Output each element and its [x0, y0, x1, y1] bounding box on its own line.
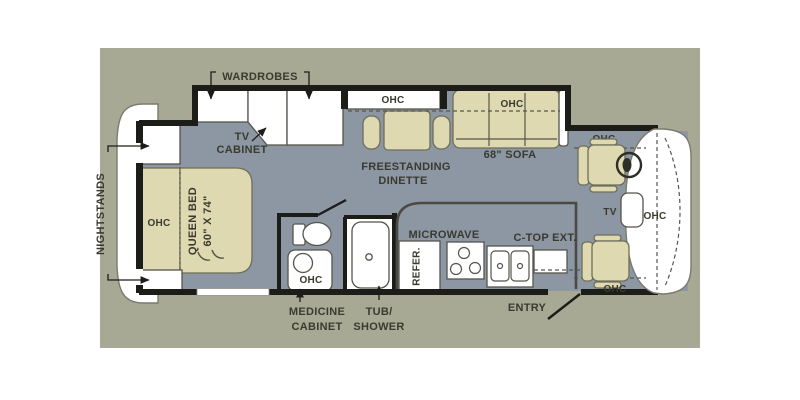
wall-post — [341, 85, 348, 109]
tub-shower-label-line1: TUB/ — [366, 306, 393, 318]
bedroom-window — [197, 289, 269, 296]
tv-cabinet-label-line2: CABINET — [217, 144, 268, 156]
queen-bed-label-line2: 60" X 74" — [202, 195, 214, 246]
dinette-chair-left — [363, 116, 380, 149]
wall-post — [440, 85, 447, 109]
refrigerator-label: REFER. — [412, 247, 423, 285]
sofa-ohc-label: OHC — [500, 99, 523, 110]
dinette-area: OHC FREESTANDING DINETTE — [347, 88, 451, 187]
passenger-ohc-label: OHC — [603, 284, 626, 295]
front-ohc-label: OHC — [643, 211, 666, 222]
wall-step-vertical — [565, 85, 571, 131]
cab-tv — [621, 193, 643, 227]
floorplan-image: OHC QUEEN BED 60" X 74" OHC FREESTANDING… — [0, 0, 800, 400]
wall-cab-top — [565, 125, 658, 131]
driver-seat-cushion — [588, 145, 625, 185]
driver-seat-armrest — [590, 139, 617, 145]
medicine-cabinet-label-line1: MEDICINE — [289, 306, 345, 318]
shower-drain — [366, 254, 372, 260]
bathroom-sink — [294, 254, 313, 273]
dinette-chair-right — [433, 116, 450, 149]
dinette-ohc-label: OHC — [381, 95, 404, 106]
nightstands-label: NIGHTSTANDS — [95, 173, 107, 255]
dinette-table — [384, 111, 430, 150]
wardrobes-label: WARDROBES — [222, 71, 297, 83]
wall-top-main — [192, 85, 568, 91]
wall-wardrobe-left — [192, 85, 198, 126]
steering-wheel-hub — [623, 158, 632, 172]
entry-label: ENTRY — [508, 302, 547, 314]
bathroom-partition-wall — [343, 217, 347, 292]
driver-seat-armrest — [590, 186, 617, 192]
passenger-seat-armrest — [594, 235, 621, 241]
tub-shower-label-line2: SHOWER — [353, 321, 404, 333]
toilet-bowl — [303, 223, 331, 246]
wardrobe-right — [287, 88, 343, 145]
vanity-ohc-label: OHC — [299, 275, 322, 286]
tv-cabinet-label-line1: TV — [235, 131, 250, 143]
bedroom-ohc-label: OHC — [147, 218, 170, 229]
dinette-label-line1: FREESTANDING — [361, 161, 451, 173]
bathroom-wall-left — [277, 213, 281, 293]
microwave-label: MICROWAVE — [409, 229, 480, 241]
medicine-cabinet-label-line2: CABINET — [292, 321, 343, 333]
dinette-label-line2: DINETTE — [378, 175, 427, 187]
floorplan-canvas: OHC QUEEN BED 60" X 74" OHC FREESTANDING… — [0, 0, 800, 400]
rear-window — [135, 269, 143, 285]
wall-bedroom-top — [139, 120, 196, 126]
nightstand-top — [142, 124, 180, 164]
queen-bed-label-line1: QUEEN BED — [187, 187, 199, 255]
sofa-label: 68" SOFA — [484, 149, 537, 161]
cab-tv-label: TV — [603, 207, 616, 218]
bathroom-wall-top-right — [344, 215, 397, 219]
wardrobe-left — [196, 88, 248, 122]
bathroom-wall-top-left — [277, 213, 318, 217]
countertop-extension-label: C-TOP EXT. — [513, 232, 576, 244]
passenger-seat-cushion — [592, 241, 629, 281]
